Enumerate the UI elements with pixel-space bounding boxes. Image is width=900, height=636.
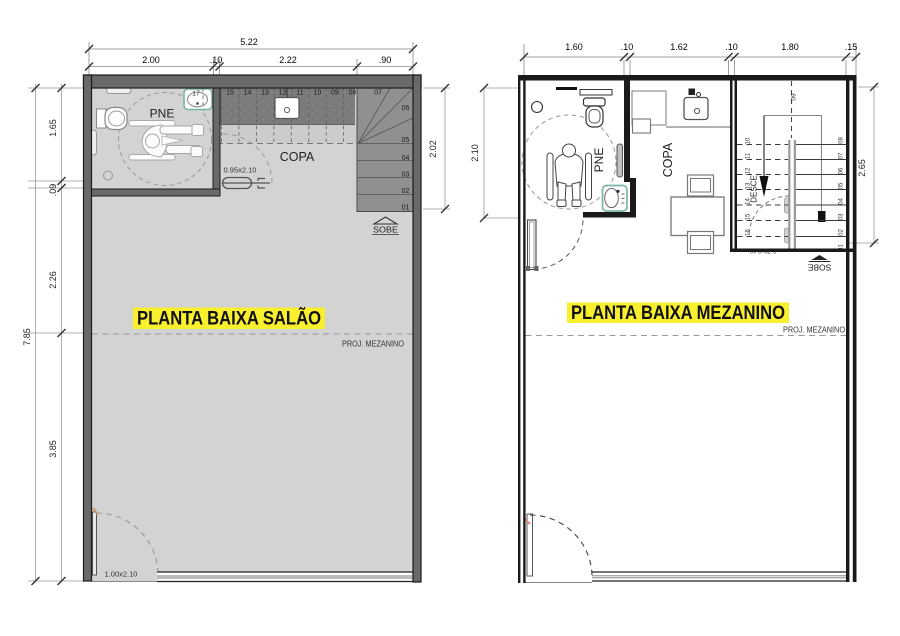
svg-text:PROJ. MEZANINO: PROJ. MEZANINO xyxy=(342,340,404,349)
svg-text:.90: .90 xyxy=(379,55,392,65)
svg-text:1.60: 1.60 xyxy=(565,42,583,52)
svg-text:1.80: 1.80 xyxy=(781,42,799,52)
svg-text:COPA: COPA xyxy=(661,142,675,177)
svg-text:2.26: 2.26 xyxy=(48,271,58,289)
svg-text:PROJ. MEZANINO: PROJ. MEZANINO xyxy=(783,326,845,335)
svg-text:.10: .10 xyxy=(621,42,634,52)
svg-text:COPA: COPA xyxy=(280,150,315,164)
svg-text:16: 16 xyxy=(746,229,752,236)
svg-text:10: 10 xyxy=(746,137,752,144)
svg-text:02: 02 xyxy=(402,188,410,195)
svg-text:5.22: 5.22 xyxy=(240,37,258,47)
svg-text:13: 13 xyxy=(261,90,269,97)
svg-text:.09: .09 xyxy=(48,184,58,197)
svg-text:09: 09 xyxy=(331,90,339,97)
svg-text:03: 03 xyxy=(839,213,845,220)
svg-text:2.65: 2.65 xyxy=(857,159,867,177)
svg-text:.10: .10 xyxy=(725,42,738,52)
svg-text:04: 04 xyxy=(402,155,410,162)
svg-text:11: 11 xyxy=(746,152,752,159)
svg-text:12: 12 xyxy=(746,167,752,174)
svg-text:04: 04 xyxy=(839,198,845,205)
svg-text:2.10: 2.10 xyxy=(470,144,480,162)
svg-text:PNE: PNE xyxy=(592,148,606,173)
svg-text:DESCE: DESCE xyxy=(750,175,759,203)
svg-text:PNE: PNE xyxy=(150,107,175,121)
svg-text:SOBE: SOBE xyxy=(807,263,831,273)
svg-text:0.95x2.10: 0.95x2.10 xyxy=(224,166,257,175)
svg-text:11: 11 xyxy=(296,90,303,97)
svg-text:01: 01 xyxy=(402,205,410,212)
svg-text:06: 06 xyxy=(402,105,410,112)
svg-text:07: 07 xyxy=(839,152,845,159)
svg-text:08: 08 xyxy=(349,90,357,97)
svg-text:08: 08 xyxy=(839,137,845,144)
svg-text:2.02: 2.02 xyxy=(428,140,438,158)
svg-text:10: 10 xyxy=(314,90,322,97)
svg-text:05: 05 xyxy=(839,182,845,189)
svg-text:15: 15 xyxy=(746,213,752,220)
svg-text:.10: .10 xyxy=(210,55,223,65)
svg-text:15: 15 xyxy=(226,90,234,97)
svg-text:2.22: 2.22 xyxy=(279,55,297,65)
svg-text:07: 07 xyxy=(374,90,382,97)
svg-text:06: 06 xyxy=(839,167,845,174)
svg-text:03: 03 xyxy=(402,172,410,179)
svg-text:PLANTA BAIXA MEZANINO: PLANTA BAIXA MEZANINO xyxy=(571,303,785,324)
svg-text:7.85: 7.85 xyxy=(22,328,32,346)
svg-text:12: 12 xyxy=(279,90,287,97)
svg-text:1.00x2.10: 1.00x2.10 xyxy=(105,570,138,579)
svg-text:09: 09 xyxy=(791,93,798,101)
svg-text:05: 05 xyxy=(402,137,410,144)
svg-text:3.85: 3.85 xyxy=(48,440,58,458)
svg-text:1.62: 1.62 xyxy=(670,42,688,52)
svg-text:PLANTA BAIXA SALÃO: PLANTA BAIXA SALÃO xyxy=(137,308,321,330)
svg-text:1.65: 1.65 xyxy=(48,119,58,137)
svg-text:SOBE: SOBE xyxy=(373,226,398,235)
svg-text:14: 14 xyxy=(244,90,252,97)
svg-text:2.00: 2.00 xyxy=(142,55,160,65)
svg-text:17: 17 xyxy=(192,91,200,98)
svg-text:02: 02 xyxy=(839,229,845,236)
svg-text:.15: .15 xyxy=(845,42,858,52)
